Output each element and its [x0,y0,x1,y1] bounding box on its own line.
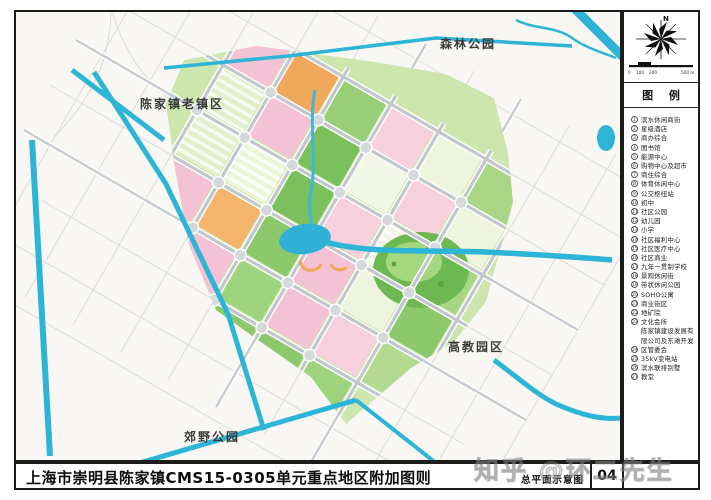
legend-item: 26 滨水联排别墅 [631,363,696,372]
legend-item: 25 35kV变电站 [631,354,696,363]
legend-item-number: 25 [631,355,638,362]
legend-item-number: 8 [631,180,638,187]
legend-item: 6 购物中心及超市 [631,161,696,170]
legend-item-label: 社区公园 [641,207,667,216]
legend-item: 14 社区福利中心 [631,234,696,243]
legend-item-number: 20 [631,291,638,298]
legend-item: 15 社区医疗中心 [631,244,696,253]
north-compass-icon: N [636,15,686,59]
legend-item-label: 九年一贯制学校 [641,262,687,271]
legend-item-number: 11 [631,208,638,215]
legend-item: 20 SOHO公寓 [631,290,696,299]
legend-item: 13 小学 [631,225,696,234]
legend-item-number: 3 [631,134,638,141]
legend-item-number: 1 [631,116,638,123]
svg-text:100: 100 [636,70,644,75]
legend-item-label: 商办综合 [641,133,667,142]
legend-item-label: 滨水联排别墅 [641,363,681,372]
legend-item-number: 24 [631,346,638,353]
legend-item-number: 4 [631,144,638,151]
svg-text:0: 0 [628,70,631,75]
sheet-number: 04 [590,464,624,488]
legend-item-number: 12 [631,217,638,224]
legend-item-number: 22 [631,309,638,316]
sheet-subtitle: 总平面示意图 [521,472,584,486]
scale-bar: 0 100 200 500 m [628,62,694,75]
legend-item: 11 社区公园 [631,207,696,216]
legend-item-label: 地矿院 [641,308,661,317]
legend-item-number: 16 [631,254,638,261]
svg-text:200: 200 [649,70,657,75]
legend-item-label: 体育休闲中心 [641,179,681,188]
legend-item: 7 商住综合 [631,170,696,179]
legend-item: 18 景观休闲街 [631,271,696,280]
legend-item-number: 10 [631,199,638,206]
title-bar: 上海市崇明县陈家镇CMS15-0305单元重点地区附加图则 总平面示意图 04 [14,462,700,490]
legend-item: 27 教堂 [631,372,696,381]
legend-item-label: 星级酒店 [641,124,667,133]
legend-item-label: 购物中心及超市 [641,161,687,170]
legend-item-label: 能源中心 [641,152,667,161]
legend-panel: N 0 100 200 500 m 图 例 1 滨水休闲商街 [622,10,700,462]
sheet-title: 上海市崇明县陈家镇CMS15-0305单元重点地区附加图则 [26,467,431,488]
legend-items: 1 滨水休闲商街 2 星级酒店 3 商办综合 4 图书馆 [624,108,698,381]
legend-item: 19 带状休闲公园 [631,280,696,289]
legend-item: 4 图书馆 [631,143,696,152]
legend-item: 24 区管委会 [631,345,696,354]
label-forest-park: 森林公园 [440,36,496,51]
legend-item: 17 九年一贯制学校 [631,262,696,271]
legend-item-number: 13 [631,226,638,233]
legend-item: 12 幼儿园 [631,216,696,225]
map-area: 森林公园 陈家镇老镇区 高教园区 郊野公园 [14,10,622,462]
legend-item-label: 社区福利中心 [641,235,681,244]
plan-sheet: 森林公园 陈家镇老镇区 高教园区 郊野公园 [0,0,711,500]
legend-item-label: 35kV变电站 [641,354,678,363]
legend-item-label: 区管委会 [641,345,667,354]
svg-text:500 m: 500 m [681,70,694,75]
legend-item-label: 初中 [641,198,654,207]
legend-item: 8 体育休闲中心 [631,179,696,188]
legend-item-label: 公交枢纽站 [641,189,674,198]
legend-item-number: 5 [631,153,638,160]
legend-item: 23 文化会所 [631,317,696,326]
legend-item-label: 滨水休闲商街 [641,115,681,124]
legend-item-label: 商业街区 [641,299,667,308]
legend-item-label: 图书馆 [641,143,661,152]
legend-item: 陈家镇建设发展有 [631,326,696,335]
label-higher-edu: 高教园区 [448,339,504,354]
legend-item: 10 初中 [631,198,696,207]
legend-item: 22 地矿院 [631,308,696,317]
legend-item-number: 15 [631,245,638,252]
legend-item: 5 能源中心 [631,152,696,161]
legend-item-label: 陈家镇建设发展有 [641,326,694,335]
legend-item-label: 教堂 [641,372,654,381]
legend-item-label: 限公司及东滩开发 [641,336,694,345]
north-label: N [663,15,669,23]
label-old-town: 陈家镇老镇区 [140,96,224,111]
legend-item-number: 21 [631,300,638,307]
legend-item-label: 景观休闲街 [641,271,674,280]
legend-item: 16 社区商业 [631,253,696,262]
legend-item-number: 23 [631,318,638,325]
legend-item-label: 文化会所 [641,317,667,326]
legend-item-label: 带状休闲公园 [641,280,681,289]
label-country-park: 郊野公园 [184,429,240,444]
legend-item-label: SOHO公寓 [641,290,674,299]
legend-item: 限公司及东滩开发 [631,336,696,345]
legend-item-number: 14 [631,236,638,243]
legend-item-label: 商住综合 [641,170,667,179]
legend-item: 3 商办综合 [631,133,696,142]
master-plan-map: 森林公园 陈家镇老镇区 高教园区 郊野公园 [16,12,620,460]
north-scale-box: N 0 100 200 500 m [624,12,698,83]
legend-item-label: 社区医疗中心 [641,244,681,253]
legend-item-number: 26 [631,364,638,371]
legend-item-number: 17 [631,263,638,270]
legend-item-number: 7 [631,171,638,178]
legend-item: 2 星级酒店 [631,124,696,133]
legend-item-label: 幼儿园 [641,216,661,225]
legend-header: 图 例 [624,83,698,108]
legend-item-number: 9 [631,190,638,197]
legend-item: 9 公交枢纽站 [631,189,696,198]
legend-item-number: 27 [631,373,638,380]
legend-item-number: 18 [631,272,638,279]
legend-item-number: 19 [631,281,638,288]
legend-item-label: 社区商业 [641,253,667,262]
legend-item-number: 6 [631,162,638,169]
legend-item-number: 2 [631,125,638,132]
legend-item: 1 滨水休闲商街 [631,115,696,124]
legend-item: 21 商业街区 [631,299,696,308]
legend-item-label: 小学 [641,225,654,234]
